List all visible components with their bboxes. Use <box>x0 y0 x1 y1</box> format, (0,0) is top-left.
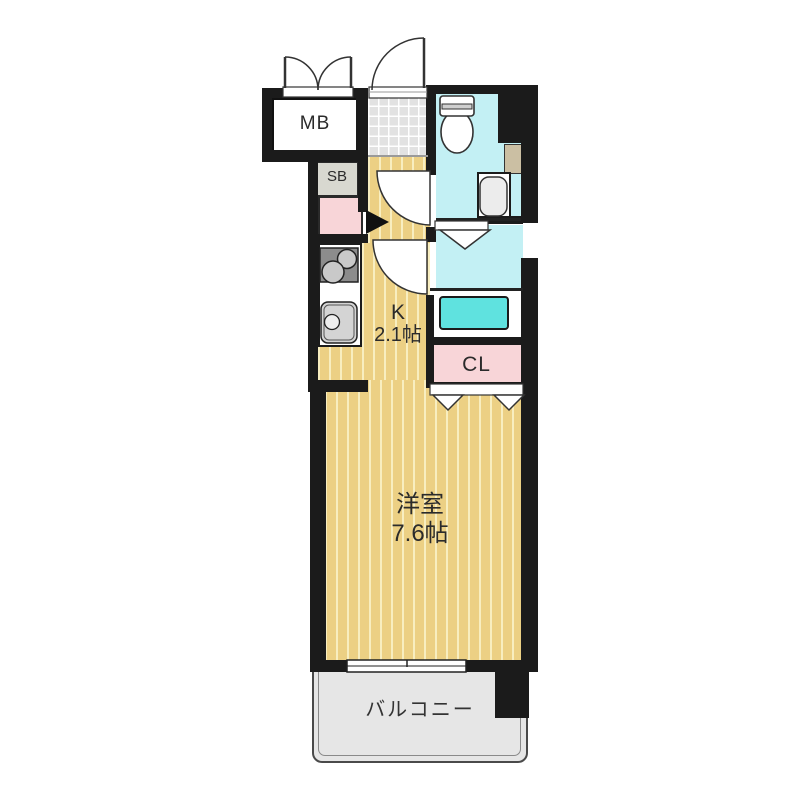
main-room-name-label: 洋室 <box>370 492 470 518</box>
balcony-label: バルコニー <box>340 699 500 721</box>
door-leaf-wedge-icon <box>366 210 389 234</box>
closet-label: CL <box>430 353 523 376</box>
main-room-size-label: 7.6帖 <box>370 521 470 547</box>
shoe-box-label: SB <box>315 169 359 186</box>
stove-icon <box>320 248 358 283</box>
floor-plan: MB SB K 2.1帖 CL 洋室 7.6帖 バルコニー <box>0 0 800 800</box>
meter-box-doors-icon <box>283 57 353 97</box>
toilet-icon <box>440 96 474 153</box>
fixtures-layer <box>0 0 800 800</box>
washbasin-icon <box>480 177 507 216</box>
entrance-door-icon <box>369 38 427 98</box>
meter-box-label: MB <box>272 114 358 135</box>
closet-folding-doors-icon <box>430 384 524 410</box>
bath-folding-door-icon <box>435 221 490 249</box>
sink-icon <box>321 302 357 343</box>
kitchen-name-label: K <box>368 301 428 324</box>
inner-door-swing-icon <box>373 240 427 294</box>
kitchen-size-label: 2.1帖 <box>358 324 438 346</box>
balcony-window-icon <box>347 660 466 672</box>
bathroom-door-swing-icon <box>377 171 430 225</box>
